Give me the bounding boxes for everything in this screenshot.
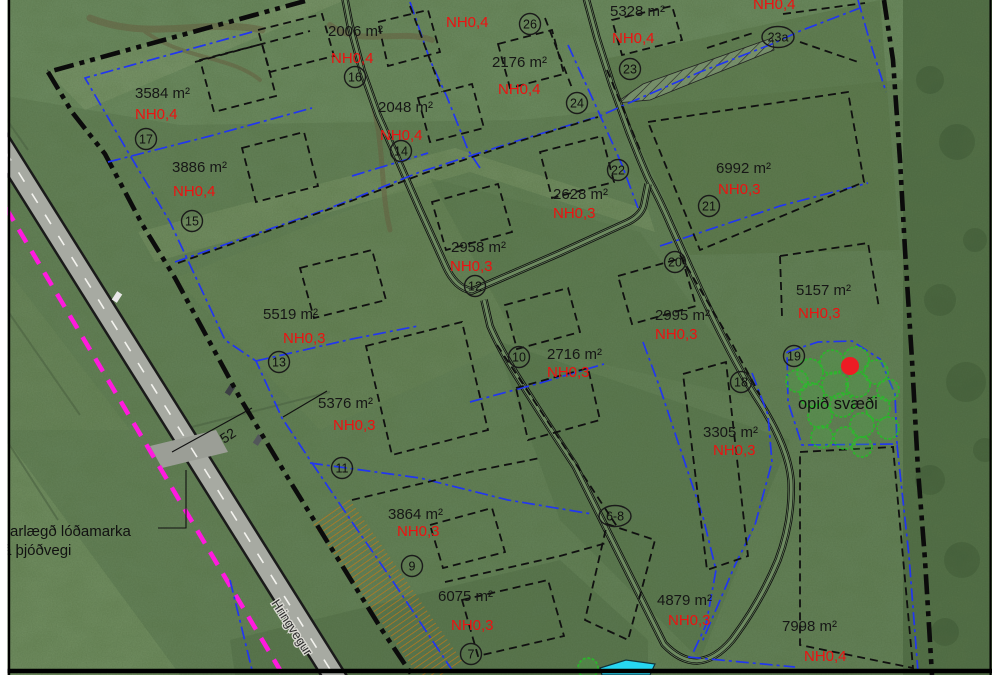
plot-nh-label: NH0,3 xyxy=(283,330,326,347)
plot-nh-label: NH0,4 xyxy=(380,127,423,144)
plot-nh-label: NH0,4 xyxy=(498,81,541,98)
plot-number: 17 xyxy=(139,132,153,146)
plot-area-label: 2958 m² xyxy=(451,239,506,256)
plot-area-label: 3305 m² xyxy=(703,424,758,441)
plot-number: 6-8 xyxy=(606,509,624,523)
plot-nh-label: NH0,3 xyxy=(798,305,841,322)
plot-area-label: 4879 m² xyxy=(657,592,712,609)
map-canvas: 2006 m²NH0,42176 m²NH0,42048 m²NH0,45328… xyxy=(0,0,992,675)
plot-area-label: 3886 m² xyxy=(172,159,227,176)
plot-number: 13 xyxy=(272,355,286,369)
plot-number: 19 xyxy=(787,349,801,363)
plot-number: 12 xyxy=(468,279,482,293)
plot-number: 11 xyxy=(336,461,349,475)
plot-area-label: 6075 m² xyxy=(438,588,493,605)
plot-nh-label: NH0,3 xyxy=(553,205,596,222)
plot-number: 16 xyxy=(348,70,362,84)
plot-number: 10 xyxy=(512,350,526,364)
plot-nh-label: NH0,4 xyxy=(331,50,374,67)
plot-number: 20 xyxy=(668,255,682,269)
plot-area-label: 2176 m² xyxy=(492,54,547,71)
plot-area-label: 5376 m² xyxy=(318,395,373,412)
plot-area-label: 2006 m² xyxy=(328,23,383,40)
plot-nh-label: NH0,4 xyxy=(173,183,216,200)
plot-area-label: 6992 m² xyxy=(716,160,771,177)
plot-nh-label: NH0,3 xyxy=(450,258,493,275)
plot-number: 9 xyxy=(409,559,416,573)
site-plan-map[interactable]: 2006 m²NH0,42176 m²NH0,42048 m²NH0,45328… xyxy=(0,0,992,675)
plot-number: 15 xyxy=(185,214,199,228)
plot-nh-label: NH0,4 xyxy=(135,106,178,123)
plot-number: 22 xyxy=(611,163,625,177)
plot-nh-label: NH0,3 xyxy=(547,364,590,381)
plot-number: 23a xyxy=(768,30,789,44)
plot-area-label: 2048 m² xyxy=(378,99,433,116)
plot-area-label: 5519 m² xyxy=(263,306,318,323)
plot-nh-label: NH0,3 xyxy=(397,523,440,540)
distance-note-line2: rá þjóðvegi xyxy=(0,542,71,559)
plot-number: 24 xyxy=(570,96,584,110)
plot-number: 7 xyxy=(468,647,475,661)
plot-nh-label: NH0,4 xyxy=(804,648,847,665)
plot-area-label: 2995 m² xyxy=(655,307,710,324)
plot-number: 26 xyxy=(523,17,537,31)
plot-number: 18 xyxy=(734,375,748,389)
plot-nh-label: NH0,4 xyxy=(446,14,489,31)
plot-number: 14 xyxy=(394,144,408,158)
open-area-label: opið svæði xyxy=(798,395,878,413)
plot-area-label: 2628 m² xyxy=(553,186,608,203)
plot-nh-label: NH0,3 xyxy=(713,442,756,459)
plot-number: 23 xyxy=(623,62,637,76)
plot-area-label: 3584 m² xyxy=(135,85,190,102)
plot-nh-label: NH0,3 xyxy=(451,617,494,634)
plot-area-label: 2716 m² xyxy=(547,346,602,363)
plot-area-label: 5328 m² xyxy=(610,3,665,20)
plot-nh-label: NH0,3 xyxy=(668,612,711,629)
plot-area-label: 3864 m² xyxy=(388,506,443,523)
red-dot-marker xyxy=(841,357,859,375)
plot-area-label: 7998 m² xyxy=(782,618,837,635)
plot-nh-label: NH0,3 xyxy=(655,326,698,343)
plot-nh-label: NH0,4 xyxy=(612,30,655,47)
plot-area-label: 5157 m² xyxy=(796,282,851,299)
plot-nh-label: NH0,3 xyxy=(718,181,761,198)
plot-nh-label: NH0,3 xyxy=(333,417,376,434)
distance-note-line1: arlægð lóðamarka xyxy=(10,523,132,540)
plot-number: 21 xyxy=(702,199,716,213)
plot-nh-label: NH0,4 xyxy=(753,0,796,13)
